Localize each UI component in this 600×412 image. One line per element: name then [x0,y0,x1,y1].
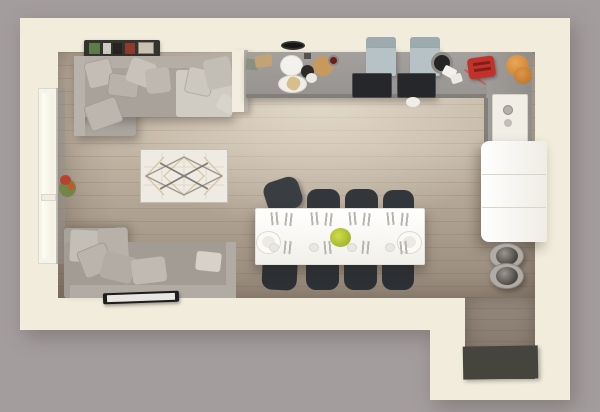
window-left-sill [41,194,56,201]
plant-flower-2 [68,183,75,190]
cutlery [310,212,320,226]
plate-large [280,55,303,76]
desk-left [352,73,392,98]
shelf-art-print [138,42,154,54]
fridge-seam-1 [482,174,546,175]
cutlery [270,212,280,226]
cutting-board [254,54,273,68]
fridge-seam-2 [482,207,546,208]
pillow-11 [131,256,168,285]
cutlery [324,213,334,227]
appliance-dial [503,105,513,115]
shelf-book-dark [113,43,122,54]
desk-right [397,73,436,98]
dining-chair-7 [344,262,377,290]
floor-plan-render [0,0,600,412]
cutlery [399,241,409,255]
shelf-book-green [89,43,100,54]
shelf-book-red [125,43,135,54]
cutlery [323,241,333,255]
side-plate [347,243,357,252]
jar-orange-small [514,67,532,84]
desk-chair-left-seat [366,48,396,76]
cutlery [362,213,372,227]
sofa-bottom-armrest-right [226,242,236,298]
stool-2-seat [496,267,518,285]
dining-chair-6 [306,262,339,290]
side-plate [269,243,279,252]
side-plate [309,243,319,252]
dining-chair-5 [261,261,297,291]
cutlery [361,241,371,255]
paper-crumb-floor [406,97,420,107]
side-plate [385,243,395,252]
window-left-pane [42,93,53,259]
pillow-4 [145,67,171,94]
pillow-12 [195,251,222,273]
shelf-book-white [103,43,111,54]
rug [140,149,228,203]
cutlery [400,213,410,227]
cutlery [283,241,293,255]
cutlery [348,212,358,226]
door-mat [463,345,539,379]
mug-red [328,55,339,66]
bowl-white [306,73,317,83]
spice-jar [304,53,311,59]
pendant-lamp [281,41,305,50]
cutlery [284,213,294,227]
cutlery [386,212,396,226]
fridge [481,141,547,242]
counter-side-edge [484,98,488,146]
appliance-dial-2 [504,119,512,127]
dining-chair-8 [382,262,414,290]
